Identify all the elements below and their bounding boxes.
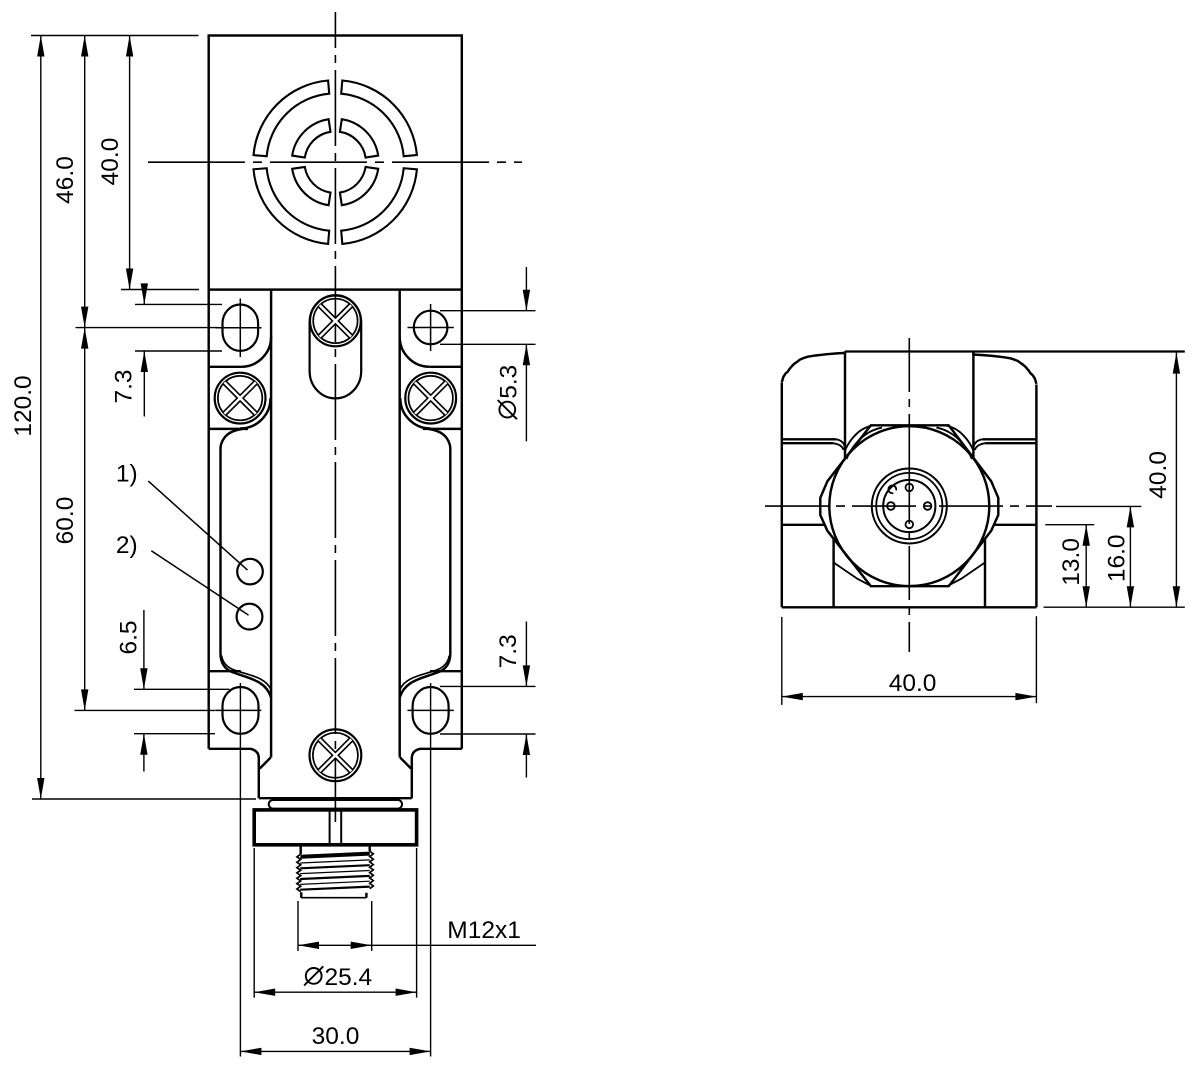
svg-text:7.3: 7.3: [110, 369, 137, 403]
svg-text:13.0: 13.0: [1058, 538, 1085, 586]
svg-text:120.0: 120.0: [10, 375, 37, 436]
svg-text:60.0: 60.0: [52, 497, 79, 545]
svg-text:M12x1: M12x1: [447, 917, 521, 944]
svg-text:5.3: 5.3: [496, 365, 523, 399]
svg-text:40.0: 40.0: [97, 138, 124, 186]
svg-text:30.0: 30.0: [312, 1023, 360, 1050]
svg-text:16.0: 16.0: [1103, 534, 1130, 582]
svg-text:7.3: 7.3: [495, 634, 522, 668]
svg-text:40.0: 40.0: [889, 670, 937, 697]
svg-text:40.0: 40.0: [1145, 451, 1172, 499]
svg-text:25.4: 25.4: [325, 964, 373, 991]
svg-text:46.0: 46.0: [52, 156, 79, 204]
svg-text:6.5: 6.5: [116, 620, 143, 654]
svg-text:2): 2): [116, 532, 138, 559]
svg-text:1): 1): [116, 461, 138, 488]
